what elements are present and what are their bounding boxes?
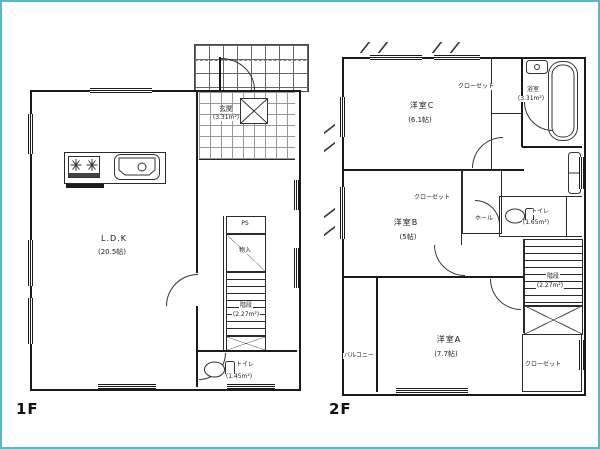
2f-midband-wall xyxy=(342,276,524,278)
vent-mark xyxy=(432,42,461,53)
window xyxy=(579,340,584,370)
2f-toilet-top-wall xyxy=(499,196,582,197)
closet-divider xyxy=(492,113,522,114)
ps-label: PS xyxy=(241,221,248,227)
genkan-name: 玄関 xyxy=(219,105,233,113)
genkan-step-line xyxy=(199,159,295,160)
window xyxy=(340,97,345,137)
1f-toilet-name: トイレ xyxy=(235,362,255,368)
ldk-name: L.D.K xyxy=(101,235,127,243)
2f-stairs-area: (2.27m²) xyxy=(536,283,564,289)
window xyxy=(434,55,480,60)
window xyxy=(90,88,152,93)
genkan-label: 玄関 xyxy=(218,106,234,113)
2f-toilet-name: トイレ xyxy=(530,209,550,215)
stove-icon xyxy=(68,156,100,178)
floorplan-canvas: 玄関 (3.31m²) L.D.K (20.5帖) xyxy=(0,0,600,449)
bedroomC-area: (6.1帖) xyxy=(408,117,432,124)
window xyxy=(294,248,299,288)
washbasin-icon xyxy=(526,60,548,74)
closet-mid-label: クローゼット xyxy=(413,195,451,201)
2f-toilet-left-wall xyxy=(499,197,500,237)
kitchen-sink-icon xyxy=(114,154,160,180)
bedroomB-area: (5帖) xyxy=(400,234,417,241)
window xyxy=(28,298,33,344)
vent-mark xyxy=(324,124,335,153)
storage-label: 物入 xyxy=(238,248,252,254)
window xyxy=(370,55,422,60)
bath-left-wall xyxy=(521,57,523,147)
bedroomC-name: 洋室C xyxy=(410,102,435,110)
1f-floor-label: 1F xyxy=(16,400,39,418)
bath-area: (3.31m²) xyxy=(517,96,545,102)
window xyxy=(340,187,345,239)
bath-name: 浴室 xyxy=(526,87,540,93)
1f-hall-wall xyxy=(196,90,198,387)
ldk-area: (20.5帖) xyxy=(98,249,126,256)
porch-overhang-line xyxy=(195,60,306,61)
1f-stairs-name: 階段 xyxy=(239,303,253,309)
vent-mark xyxy=(324,208,335,237)
window xyxy=(28,114,33,154)
2f-stairs-winder xyxy=(524,305,583,335)
balcony-label: バルコニー xyxy=(343,353,375,359)
service-column-wall xyxy=(223,216,224,350)
window xyxy=(98,384,156,389)
1f-stairs-area: (2.27m²) xyxy=(232,312,260,318)
2f-toilet-area: (1.65m²) xyxy=(522,220,550,226)
counter-base-bar xyxy=(66,184,104,188)
window xyxy=(294,180,299,210)
2f-stairs-name: 階段 xyxy=(546,274,560,280)
window xyxy=(28,240,33,286)
window xyxy=(579,157,584,189)
bedroomA-area: (7.7帖) xyxy=(434,351,458,358)
closet-top-label: クローゼット xyxy=(457,84,495,90)
2f-toilet-right-wall xyxy=(566,197,567,237)
vent-mark xyxy=(360,42,389,53)
balcony-sliding-window xyxy=(396,388,468,393)
toilet-top-wall xyxy=(197,350,297,352)
genkan-area: (3.31m²) xyxy=(212,115,240,121)
2f-toilet-bottom-wall xyxy=(499,236,582,237)
2f-floor-label: 2F xyxy=(329,400,352,418)
1f-toilet-area: (1.45m²) xyxy=(225,374,253,380)
bedroomB-name: 洋室B xyxy=(394,219,419,227)
bath-bottom-wall xyxy=(522,146,582,148)
closet-bottom-label: クローゼット xyxy=(524,362,562,368)
bedroomA-left-wall xyxy=(376,277,378,392)
window xyxy=(227,384,275,389)
bedroomA-name: 洋室A xyxy=(437,336,461,344)
cross-box-icon xyxy=(240,98,268,124)
under-stairs xyxy=(226,336,266,351)
